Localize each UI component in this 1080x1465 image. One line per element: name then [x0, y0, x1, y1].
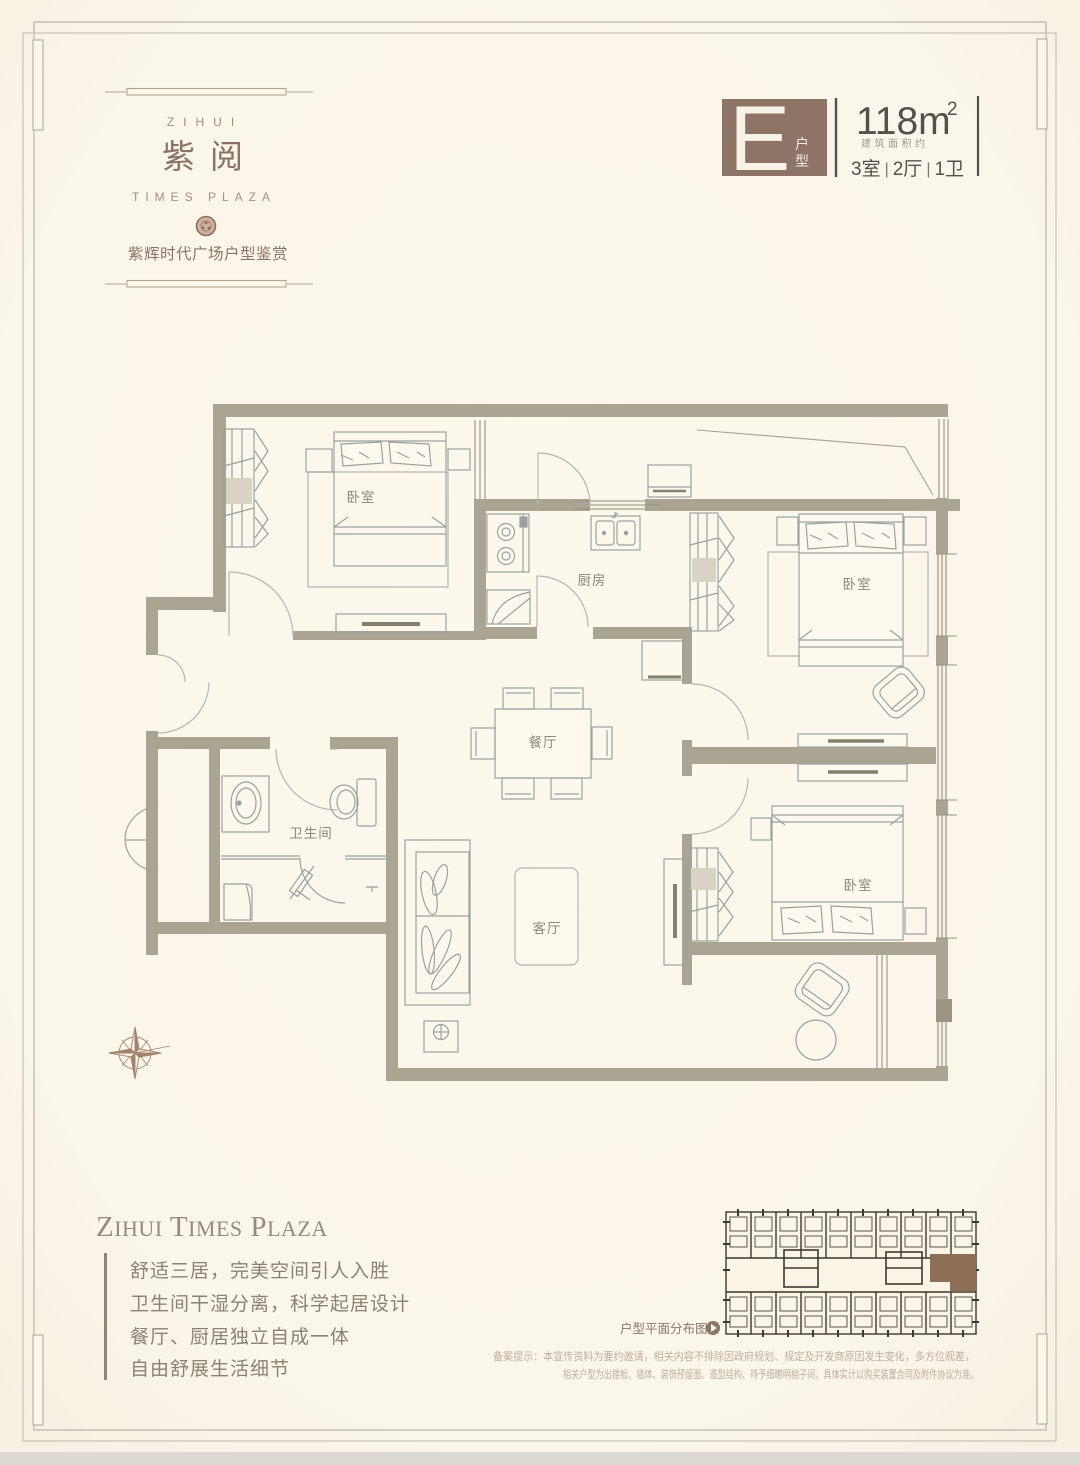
svg-text:2: 2: [947, 99, 958, 120]
svg-text:型: 型: [795, 153, 809, 169]
svg-text:相关户型为出楼板、墙体、装饰预留面、造型结构、待予细瞭明相子: 相关户型为出楼板、墙体、装饰预留面、造型结构、待予细瞭明相子间，具体实计以购买装…: [563, 1367, 978, 1381]
svg-text:TIMES PLAZA: TIMES PLAZA: [132, 190, 276, 204]
svg-text:客厅: 客厅: [533, 920, 562, 936]
svg-text:118m: 118m: [856, 100, 951, 143]
svg-text:ZIHUI TIMES PLAZA: ZIHUI TIMES PLAZA: [96, 1211, 328, 1243]
svg-text:建筑面积约: 建筑面积约: [861, 137, 929, 150]
svg-text:紫辉时代广场户型鉴赏: 紫辉时代广场户型鉴赏: [128, 245, 288, 263]
svg-text:餐厅、厨居独立自成一体: 餐厅、厨居独立自成一体: [130, 1326, 350, 1348]
svg-text:卫生间干湿分离，科学起居设计: 卫生间干湿分离，科学起居设计: [130, 1293, 410, 1315]
svg-text:阅: 阅: [210, 138, 243, 175]
svg-text:卫生间: 卫生间: [289, 826, 333, 841]
svg-text:卧室: 卧室: [843, 576, 872, 592]
svg-text:舒适三居，完美空间引人入胜: 舒适三居，完美空间引人入胜: [130, 1260, 390, 1282]
svg-text:户: 户: [795, 136, 809, 152]
svg-text:ZIHUI: ZIHUI: [167, 115, 243, 129]
svg-text:紫: 紫: [162, 138, 195, 175]
svg-text:3室|2厅|1卫: 3室|2厅|1卫: [851, 158, 964, 180]
svg-text:自由舒展生活细节: 自由舒展生活细节: [130, 1358, 290, 1380]
svg-text:备案提示：本宣传资料为要约邀请，相关内容不排除因政府规划、规: 备案提示：本宣传资料为要约邀请，相关内容不排除因政府规划、规定及开发商原因发生变…: [493, 1349, 975, 1363]
svg-text:E: E: [729, 88, 790, 190]
svg-text:户型平面分布图: 户型平面分布图: [620, 1321, 708, 1336]
svg-text:厨房: 厨房: [578, 573, 607, 588]
svg-text:卧室: 卧室: [844, 877, 873, 893]
svg-text:餐厅: 餐厅: [529, 735, 558, 750]
svg-text:卧室: 卧室: [347, 489, 376, 505]
